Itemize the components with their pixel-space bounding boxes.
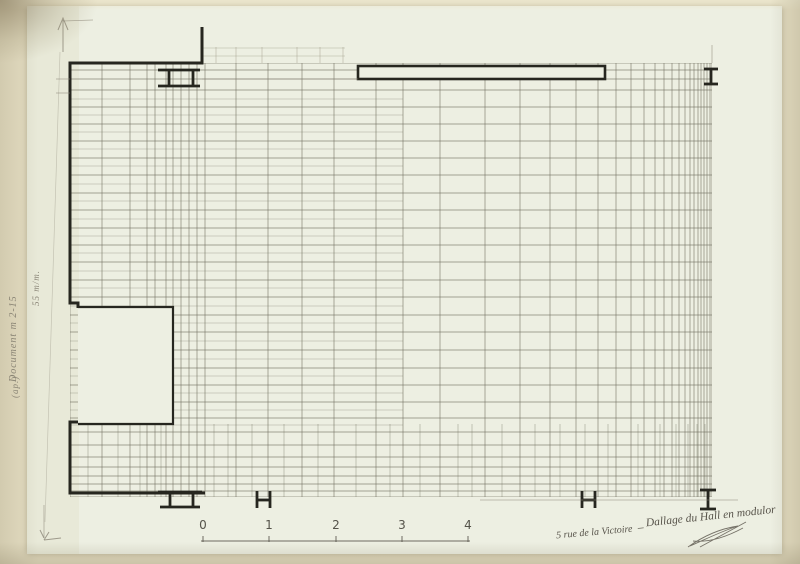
scale-bar [201,536,470,542]
column-top-left [158,70,200,86]
tile-grid-top-extension [202,47,345,63]
scale-number: 3 [398,518,406,532]
plan-drawing [0,0,800,564]
scale-number: 0 [199,518,207,532]
scale-number: 1 [265,518,273,532]
column-top-right [704,69,718,84]
arrow-down-icon [40,530,61,540]
column-bottom-right [700,490,716,509]
photo-of-architectural-drawing: { "meta": { "subject": "Floor plan — til… [0,0,800,564]
north-arrow-up-icon [58,18,68,52]
scale-number: 2 [332,518,340,532]
column-bottom-h2 [582,491,595,508]
steel-columns [158,69,718,509]
signature-paraph [688,522,746,547]
pencil-marks [40,18,738,540]
scale-number: 4 [464,518,472,532]
tile-grid [70,63,712,497]
